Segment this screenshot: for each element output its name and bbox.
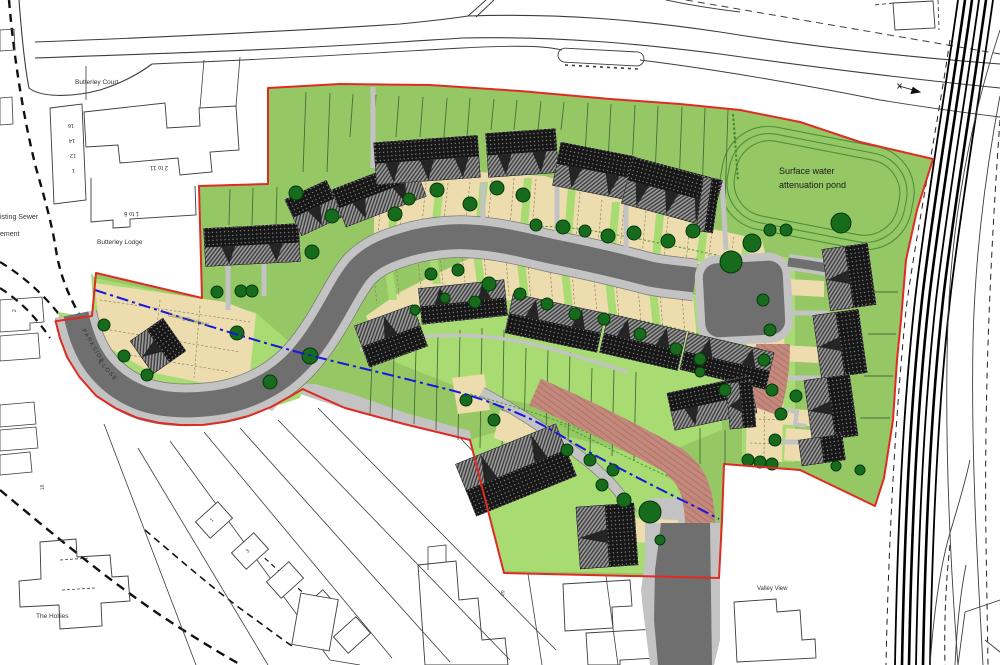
svg-text:29: 29 <box>500 590 506 596</box>
svg-text:The Hollies: The Hollies <box>36 613 69 620</box>
svg-text:14: 14 <box>69 137 75 143</box>
svg-text:attenuation pond: attenuation pond <box>779 180 846 190</box>
svg-text:Surface water: Surface water <box>779 166 835 176</box>
svg-text:2: 2 <box>12 309 18 312</box>
svg-text:Butterley Lodge: Butterley Lodge <box>97 239 143 246</box>
svg-text:ement: ement <box>0 231 20 238</box>
svg-text:1 to 6: 1 to 6 <box>123 210 139 216</box>
svg-text:Butterley Court: Butterley Court <box>75 79 119 86</box>
svg-text:1: 1 <box>72 167 75 173</box>
svg-text:Valley View: Valley View <box>757 586 788 592</box>
svg-text:16: 16 <box>68 122 74 128</box>
svg-text:2 to 11: 2 to 11 <box>149 164 168 170</box>
svg-text:isting Sewer: isting Sewer <box>0 214 39 221</box>
svg-text:16: 16 <box>40 484 46 490</box>
svg-text:12: 12 <box>70 152 76 158</box>
